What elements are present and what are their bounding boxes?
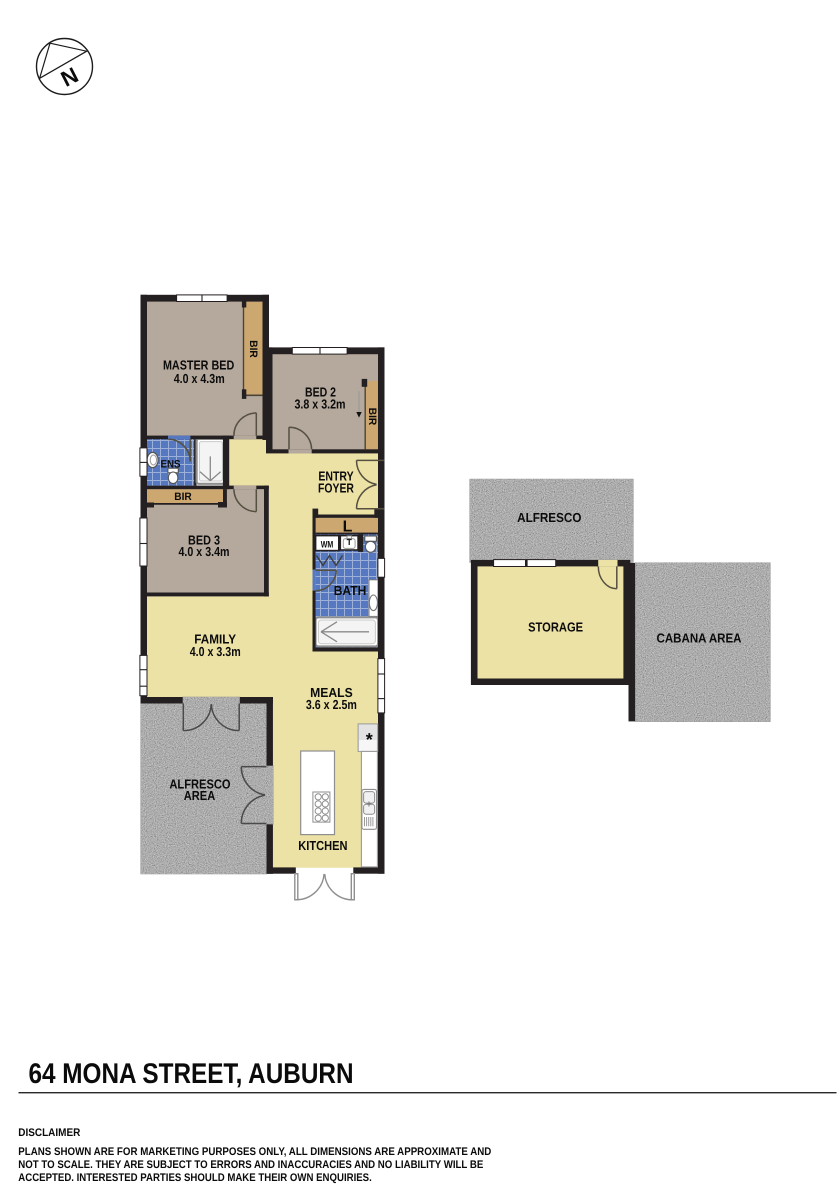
svg-text:4.0 x 3.3m: 4.0 x 3.3m (190, 644, 241, 659)
svg-text:3.6 x 2.5m: 3.6 x 2.5m (306, 697, 357, 712)
svg-text:STORAGE: STORAGE (528, 620, 583, 635)
svg-text:ACCEPTED. INTERESTED PARTIES S: ACCEPTED. INTERESTED PARTIES SHOULD MAKE… (18, 1172, 372, 1184)
svg-text:4.0 x 3.4m: 4.0 x 3.4m (179, 544, 230, 559)
svg-text:4.0 x 4.3m: 4.0 x 4.3m (174, 371, 225, 386)
svg-text:3.8 x 3.2m: 3.8 x 3.2m (295, 397, 346, 412)
svg-text:BIR: BIR (247, 340, 259, 358)
svg-text:NOT TO SCALE. THEY ARE SUBJECT: NOT TO SCALE. THEY ARE SUBJECT TO ERRORS… (18, 1159, 483, 1171)
svg-text:WM: WM (321, 539, 334, 550)
svg-text:BIR: BIR (366, 408, 378, 426)
svg-text:FOYER: FOYER (318, 481, 354, 496)
svg-text:DISCLAIMER: DISCLAIMER (18, 1127, 80, 1139)
svg-text:AREA: AREA (184, 788, 216, 803)
svg-text:KITCHEN: KITCHEN (298, 838, 347, 853)
svg-text:CABANA AREA: CABANA AREA (657, 630, 743, 645)
svg-text:L: L (343, 518, 353, 535)
svg-text:ALFRESCO: ALFRESCO (517, 510, 581, 525)
svg-text:64 MONA STREET, AUBURN: 64 MONA STREET, AUBURN (29, 1058, 354, 1090)
svg-text:BIR: BIR (174, 491, 192, 503)
svg-text:BATH: BATH (334, 583, 367, 598)
svg-text:*: * (366, 730, 373, 750)
svg-text:T: T (347, 537, 353, 547)
svg-text:PLANS SHOWN ARE FOR MARKETING: PLANS SHOWN ARE FOR MARKETING PURPOSES O… (18, 1146, 491, 1158)
svg-text:ENS: ENS (161, 458, 181, 470)
